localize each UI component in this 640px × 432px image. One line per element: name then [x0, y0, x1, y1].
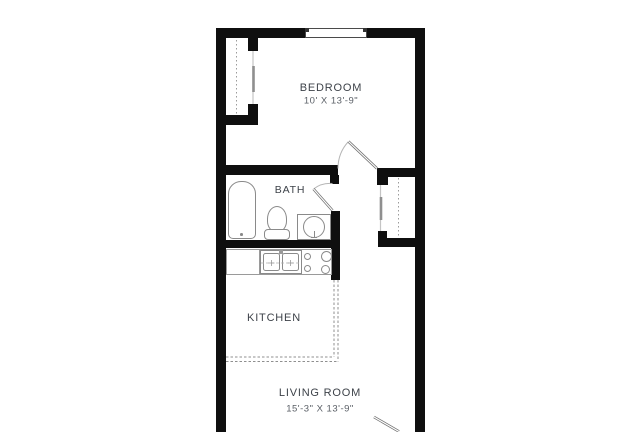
living-room-label: LIVING ROOM: [279, 387, 361, 399]
entry-door-core: [374, 417, 399, 432]
bedroom-dimensions: 10' X 13'-9": [304, 96, 358, 107]
floor-plan: BEDROOM 10' X 13'-9" BATH KITCHEN LIVING…: [0, 0, 640, 432]
kitchen-label: KITCHEN: [247, 312, 301, 324]
bedroom-label: BEDROOM: [300, 82, 362, 94]
kitchen-sink-mark-right: [288, 260, 294, 266]
living-room-dimensions: 15'-3" X 13'-9": [286, 404, 354, 415]
bath-door-swing-arc: [314, 183, 333, 189]
bedroom-door-swing-arc: [338, 142, 349, 169]
linework-overlay: [0, 0, 640, 432]
bath-label: BATH: [275, 184, 305, 196]
kitchen-sink-mark-left: [269, 260, 275, 266]
bedroom-door-core: [349, 142, 378, 169]
bath-door-core: [314, 189, 333, 211]
